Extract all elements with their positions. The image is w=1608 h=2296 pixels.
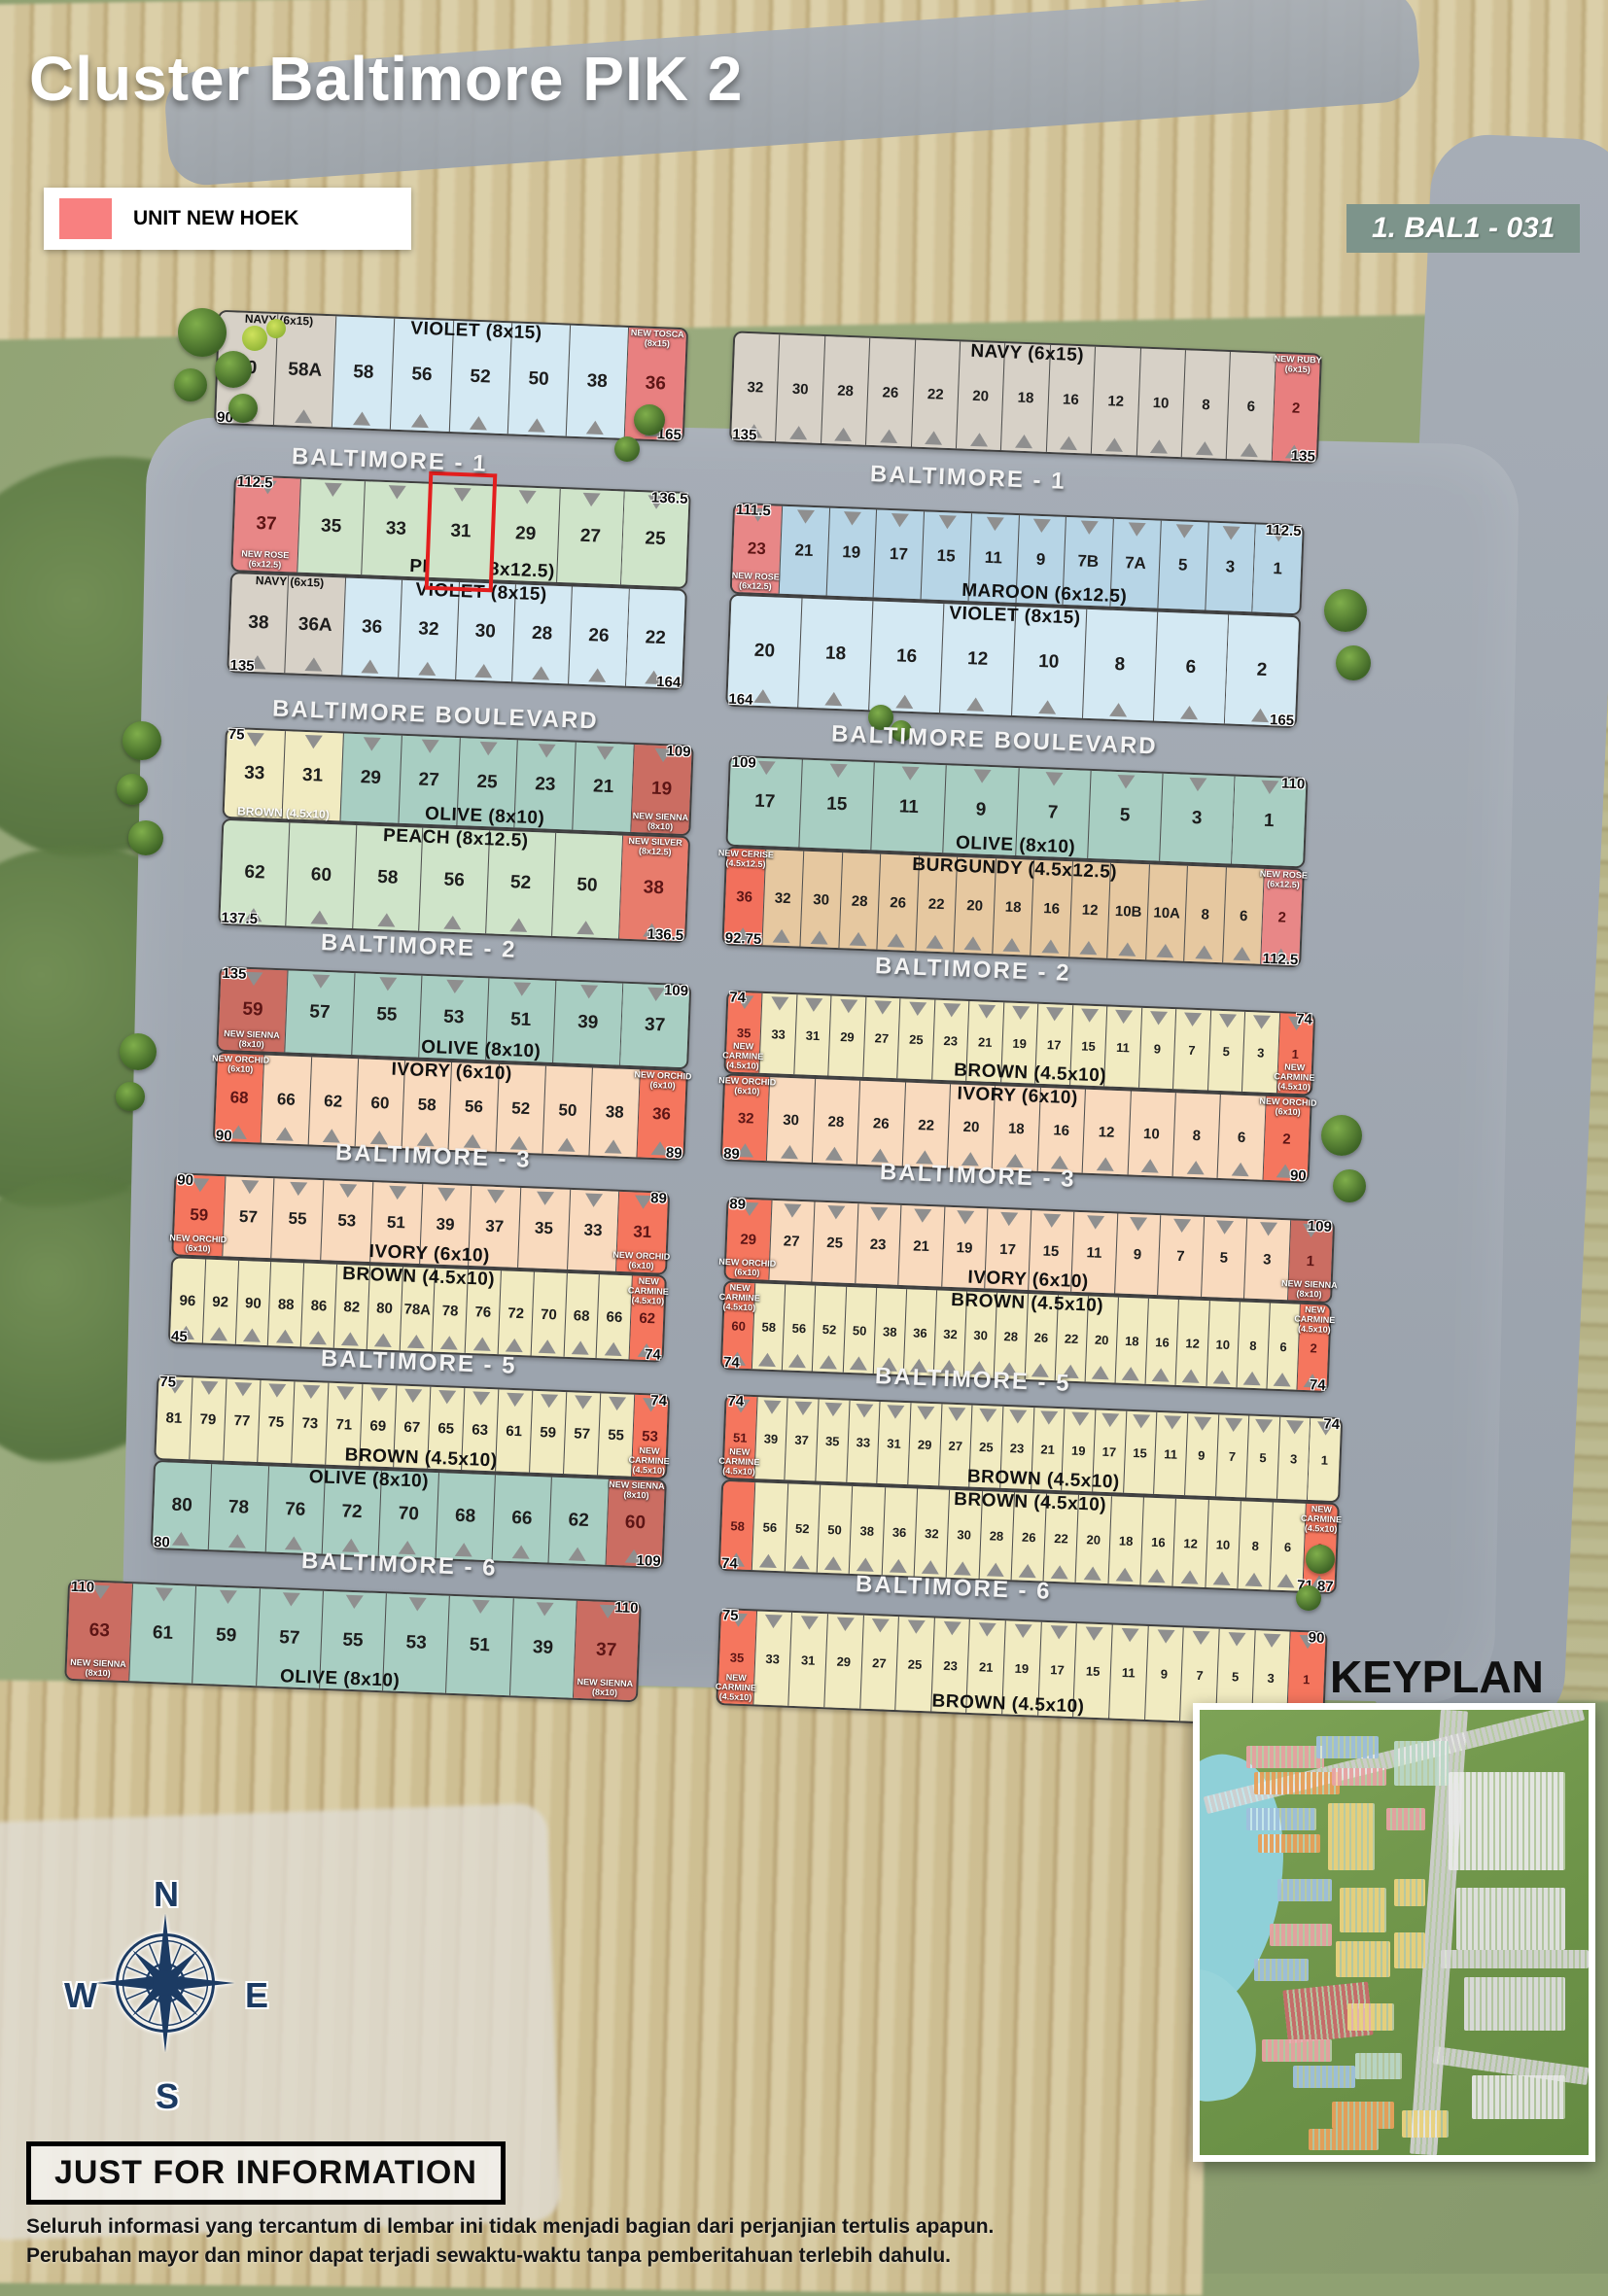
hoek-type-label: NEW ORCHID(6x10)	[628, 1070, 698, 1093]
entrance-triangle-icon	[1194, 1416, 1212, 1431]
keyplan-housing-strip	[1441, 1950, 1589, 1967]
unit-12: 12	[1172, 1499, 1208, 1587]
entrance-triangle-icon	[389, 485, 407, 500]
unit-number: 81	[165, 1409, 182, 1427]
unit-number: 6	[1279, 1339, 1287, 1354]
entrance-triangle-icon	[999, 1212, 1018, 1227]
unit-number: 52	[470, 366, 491, 389]
unit-number: 9	[975, 799, 986, 820]
unit-number: 38	[859, 1523, 874, 1539]
entrance-triangle-icon	[926, 935, 944, 950]
entrance-triangle-icon	[577, 921, 595, 935]
entrance-triangle-icon	[312, 974, 331, 989]
unit-number: 17	[890, 544, 909, 565]
keyplan-housing-strip	[1254, 1959, 1309, 1981]
entrance-triangle-icon	[411, 413, 430, 428]
tree	[1324, 589, 1367, 632]
entrance-triangle-icon	[418, 661, 437, 676]
unit-22: 22	[901, 1083, 950, 1168]
unit-number: 10A	[1153, 904, 1180, 922]
keyplan-housing-strip	[1316, 1736, 1379, 1758]
unit-number: 33	[244, 763, 265, 785]
entrance-triangle-icon	[536, 1602, 554, 1617]
unit-number: 21	[913, 1237, 929, 1255]
entrance-triangle-icon	[541, 1394, 559, 1409]
tree	[634, 404, 665, 435]
entrance-triangle-icon	[1083, 1566, 1101, 1581]
unit-8: 8	[1184, 866, 1226, 962]
entrance-triangle-icon	[1180, 706, 1199, 720]
unit-number: 2	[1310, 1340, 1317, 1355]
keyplan-housing-strip	[1270, 1924, 1332, 1946]
unit-number: 1	[1303, 1672, 1311, 1687]
keyplan-housing-strip	[1386, 1808, 1425, 1830]
unit-79: 79	[189, 1377, 226, 1460]
entrance-triangle-icon	[757, 761, 776, 776]
hoek-type-label: NEW ORCHID(6x10)	[161, 1234, 233, 1256]
unit-72: 72	[498, 1270, 534, 1355]
entrance-triangle-icon	[156, 1587, 174, 1602]
unit-number: 12	[1185, 1336, 1200, 1351]
entrance-triangle-icon	[938, 515, 957, 530]
entrance-triangle-icon	[1241, 443, 1259, 458]
unit-27: 27	[859, 1616, 898, 1710]
unit-number: 9	[1160, 1666, 1168, 1681]
unit-number: 57	[279, 1627, 300, 1650]
unit-number: 33	[771, 1026, 786, 1042]
unit-39: 39	[552, 981, 622, 1065]
entrance-triangle-icon	[1118, 942, 1136, 957]
unit-number: 32	[747, 379, 763, 397]
unit-number: 2	[1292, 400, 1301, 416]
hoek-type-label: NEW CARMINE(4.5x10)	[620, 1276, 677, 1307]
unit-number: 29	[836, 1653, 851, 1669]
entrance-triangle-icon	[324, 483, 342, 498]
entrance-triangle-icon	[901, 766, 920, 781]
unit-number: 12	[1107, 393, 1124, 410]
unit-9: 9	[1114, 1213, 1161, 1295]
unit-number: 7	[1188, 1042, 1196, 1057]
entrance-triangle-icon	[789, 426, 808, 440]
unit-number: 57	[309, 1001, 331, 1024]
unit-number: 15	[826, 794, 848, 817]
entrance-triangle-icon	[763, 1400, 782, 1414]
entrance-triangle-icon	[268, 1383, 287, 1398]
unit-number: 10	[1143, 1125, 1160, 1142]
unit-number: 33	[583, 1220, 603, 1240]
unit-number: 57	[574, 1425, 590, 1443]
entrance-triangle-icon	[302, 1385, 321, 1400]
entrance-triangle-icon	[470, 416, 488, 431]
bush	[242, 326, 267, 351]
entrance-triangle-icon	[240, 1180, 259, 1195]
unit-number: 21	[593, 776, 614, 798]
unit-type-label: IVORY (6x10)	[967, 1268, 1089, 1294]
unit-number: 16	[1053, 1122, 1069, 1139]
unit-70: 70	[530, 1272, 566, 1357]
unit-5: 5	[1157, 521, 1207, 610]
entrance-triangle-icon	[339, 1184, 358, 1199]
entrance-triangle-icon	[379, 977, 398, 991]
unit-number: 10	[1152, 395, 1169, 412]
edge-dimension: 90	[216, 1128, 232, 1145]
street-label: BALTIMORE - 2	[875, 953, 1071, 988]
entrance-triangle-icon	[1163, 1415, 1181, 1430]
unit-21: 21	[897, 1205, 944, 1287]
entrance-triangle-icon	[1038, 700, 1057, 714]
unit-number: 33	[765, 1651, 780, 1666]
unit-number: 29	[740, 1231, 756, 1248]
unit-type-label: IVORY (6x10)	[957, 1084, 1078, 1110]
entrance-triangle-icon	[908, 1002, 926, 1017]
unit-number: 16	[1155, 1335, 1170, 1350]
tree	[228, 394, 258, 423]
unit-number: 21	[978, 1034, 993, 1050]
entrance-triangle-icon	[765, 1615, 784, 1629]
unit-number: 2	[1277, 909, 1286, 925]
unit-number: 19	[1014, 1660, 1029, 1676]
unit-number: 7	[1176, 1247, 1185, 1264]
tree	[116, 1082, 145, 1111]
street-label: BALTIMORE BOULEVARD	[831, 721, 1159, 761]
unit-10: 10	[1206, 1301, 1240, 1387]
entrance-triangle-icon	[1259, 1222, 1277, 1236]
entrance-triangle-icon	[440, 1336, 459, 1350]
compass-south-label: S	[156, 2076, 179, 2117]
entrance-triangle-icon	[1033, 519, 1052, 534]
unit-number: 60	[310, 864, 332, 887]
unit-25: 25	[894, 1617, 933, 1711]
unit-number: 6	[1246, 398, 1255, 414]
hoek-type-label: NEW CARMINE(4.5x10)	[1266, 1062, 1324, 1094]
unit-55: 55	[271, 1178, 324, 1260]
entrance-triangle-icon	[1043, 1214, 1062, 1229]
unit-60: 60	[286, 822, 356, 928]
entrance-triangle-icon	[970, 433, 989, 447]
edge-dimension: 74	[721, 1555, 738, 1573]
unit-type-label: OLIVE (8x10)	[425, 804, 545, 830]
disclaimer-text: Seluruh informasi yang tercantum di lemb…	[26, 2212, 1164, 2272]
unit-number: 73	[301, 1414, 318, 1432]
edge-dimension: 74	[1323, 1416, 1340, 1434]
unit-number: 3	[1267, 1670, 1275, 1685]
unit-type-label: OLIVE (8x10)	[956, 833, 1076, 859]
edge-dimension: 75	[159, 1374, 176, 1391]
tree	[122, 721, 161, 760]
unit-type-label: OLIVE (8x10)	[308, 1467, 429, 1493]
hoek-type-label: NEW CARMINE(4.5x10)	[706, 1673, 765, 1704]
tree	[117, 774, 148, 805]
unit-77: 77	[223, 1379, 260, 1462]
unit-12: 12	[1091, 347, 1140, 456]
hoek-type-label: NEW CARMINE(4.5x10)	[1293, 1504, 1348, 1535]
entrance-triangle-icon	[1182, 1369, 1201, 1383]
unit-number: 31	[633, 1222, 652, 1242]
unit-56: 56	[782, 1284, 816, 1371]
entrance-triangle-icon	[341, 1332, 360, 1346]
unit-15: 15	[1123, 1411, 1157, 1494]
unit-number: 10B	[1115, 902, 1142, 920]
entrance-triangle-icon	[374, 1333, 393, 1347]
unit-number: 22	[645, 627, 666, 649]
unit-number: 62	[324, 1092, 343, 1112]
entrance-triangle-icon	[507, 1393, 525, 1408]
unit-8: 8	[1082, 609, 1157, 721]
keyplan-housing-strip	[1262, 2039, 1332, 2062]
unit-number: 53	[443, 1007, 465, 1029]
entrance-triangle-icon	[557, 1137, 576, 1152]
unit-number: 25	[826, 1235, 843, 1252]
unit-number: 29	[840, 1028, 855, 1044]
unit-number: 62	[639, 1309, 655, 1327]
unit-number: 25	[908, 1656, 923, 1672]
entrance-triangle-icon	[408, 1597, 427, 1612]
unit-16: 16	[1140, 1497, 1176, 1585]
unit-number: 68	[229, 1088, 249, 1108]
unit-90: 90	[234, 1261, 270, 1345]
entrance-triangle-icon	[528, 418, 546, 433]
unit-30: 30	[775, 334, 824, 443]
tree	[178, 308, 227, 357]
unit-number: 20	[1095, 1332, 1109, 1347]
entrance-triangle-icon	[245, 972, 263, 987]
unit-number: 31	[801, 1652, 816, 1668]
unit-number: 61	[506, 1422, 522, 1440]
entrance-triangle-icon	[247, 733, 265, 748]
entrance-triangle-icon	[1263, 1634, 1281, 1649]
entrance-triangle-icon	[925, 431, 943, 445]
unit-26: 26	[865, 338, 915, 447]
edge-dimension: 89	[650, 1190, 667, 1207]
entrance-triangle-icon	[1070, 1412, 1089, 1427]
unit-2: 2	[1224, 614, 1299, 726]
tree	[1321, 1115, 1362, 1156]
edge-dimension: 110	[71, 1579, 95, 1596]
entrance-triangle-icon	[569, 1547, 587, 1561]
keyplan-housing-strip	[1449, 1772, 1565, 1870]
unit-26: 26	[856, 1081, 905, 1166]
unit-number: 11	[1116, 1039, 1130, 1055]
unit-number: 36	[892, 1524, 907, 1540]
unit-number: 78	[441, 1302, 458, 1319]
hoek-type-label: NEW CARMINE(4.5x10)	[620, 1446, 678, 1478]
info-box: JUST FOR INFORMATION	[26, 2141, 506, 2205]
entrance-triangle-icon	[1245, 1573, 1264, 1587]
unit-27: 27	[556, 489, 624, 584]
unit-number: 38	[643, 877, 664, 899]
unit-number: 58	[730, 1518, 745, 1534]
unit-number: 11	[984, 548, 1002, 569]
entrance-triangle-icon	[1040, 1410, 1059, 1425]
unit-number: 11	[1164, 1446, 1177, 1462]
entrance-triangle-icon	[850, 1356, 868, 1371]
unit-type-label: IVORY (6x10)	[368, 1241, 490, 1268]
unit-number: 35	[321, 516, 342, 539]
unit-23: 23	[855, 1203, 901, 1285]
unit-number: 27	[418, 769, 439, 791]
unit-number: 27	[874, 1030, 889, 1046]
hoek-type-label: NEW ORCHID(6x10)	[205, 1054, 275, 1076]
unit-number: 17	[999, 1240, 1016, 1258]
unit-11: 11	[1108, 1625, 1147, 1720]
unit-number: 21	[794, 540, 814, 561]
unit-31: 31	[788, 1613, 827, 1707]
entrance-triangle-icon	[572, 1340, 590, 1355]
unit-number: 57	[239, 1207, 259, 1228]
unit-number: 8	[1202, 396, 1210, 412]
unit-number: 78	[227, 1497, 249, 1519]
tree	[1333, 1169, 1366, 1202]
unit-30: 30	[800, 852, 842, 948]
entrance-triangle-icon	[1101, 1413, 1120, 1428]
entrance-triangle-icon	[759, 1553, 778, 1568]
unit-61: 61	[495, 1389, 532, 1472]
entrance-triangle-icon	[295, 409, 313, 424]
unit-number: 68	[574, 1307, 590, 1325]
edge-dimension: 164	[656, 674, 682, 691]
unit-number: 72	[341, 1501, 363, 1523]
entrance-triangle-icon	[604, 1341, 622, 1356]
entrance-triangle-icon	[796, 509, 815, 524]
hoek-type-label: NEW CERISE(4.5x12.5)	[716, 849, 777, 870]
edge-dimension: 109	[636, 1552, 661, 1570]
unit-36: 36	[881, 1487, 917, 1576]
hoek-type-label: NEW ROSE(6x12.5)	[720, 572, 790, 594]
unit-62: 62	[307, 1057, 358, 1146]
unit-59: 59	[192, 1586, 260, 1686]
unit-number: 52	[822, 1321, 837, 1337]
keyplan-housing-strip	[1394, 1879, 1425, 1905]
unit-28: 28	[838, 852, 880, 949]
edge-dimension: 74	[1310, 1376, 1326, 1394]
unit-18: 18	[797, 599, 872, 711]
unit-number: 5	[1222, 1044, 1230, 1059]
unit-6: 6	[1153, 612, 1228, 724]
unit-number: 38	[605, 1102, 624, 1123]
entrance-triangle-icon	[192, 1178, 210, 1193]
unit-number: 53	[405, 1632, 427, 1654]
unit-number: 58	[761, 1319, 776, 1335]
unit-number: 63	[472, 1421, 488, 1439]
unit-number: 9	[1035, 550, 1045, 570]
unit-type-label: NAVY (6x15)	[970, 341, 1085, 366]
entrance-triangle-icon	[487, 1190, 506, 1204]
keyplan-housing-strip	[1464, 1977, 1565, 2031]
unit-number: 33	[856, 1435, 870, 1450]
entrance-triangle-icon	[605, 1139, 623, 1154]
entrance-triangle-icon	[977, 1004, 996, 1019]
unit-number: 10	[1038, 651, 1060, 674]
unit-number: 38	[248, 612, 269, 635]
entrance-triangle-icon	[474, 664, 493, 678]
entrance-triangle-icon	[228, 1534, 247, 1548]
hoek-type-label: NEW CARMINE(4.5x10)	[1288, 1305, 1342, 1336]
unit-5: 5	[1201, 1217, 1247, 1299]
unit-number: 31	[806, 1027, 821, 1043]
unit-number: 53	[642, 1428, 658, 1445]
entrance-triangle-icon	[758, 1352, 777, 1367]
unit-number: 22	[1065, 1331, 1079, 1346]
unit-number: 36	[913, 1325, 927, 1340]
block-b2-left: 59NEW SIENNA(8x10)575553513937OLIVE (8x1…	[213, 966, 692, 1162]
entrance-triangle-icon	[819, 1355, 837, 1370]
unit-51: 51	[445, 1596, 512, 1695]
entrance-triangle-icon	[583, 493, 602, 507]
unit-number: 18	[1005, 898, 1022, 916]
unit-25: 25	[897, 998, 935, 1079]
entrance-triangle-icon	[1277, 1574, 1296, 1588]
unit-number: 32	[943, 1326, 958, 1341]
entrance-triangle-icon	[888, 933, 906, 948]
unit-35: 35	[815, 1400, 849, 1482]
unit-number: 68	[455, 1506, 476, 1528]
unit-number: 15	[936, 546, 956, 567]
entrance-triangle-icon	[849, 932, 867, 947]
unit-number: 70	[398, 1504, 419, 1526]
unit-number: 59	[540, 1424, 556, 1442]
entrance-triangle-icon	[1150, 439, 1169, 454]
block-b1-right: 23NEW ROSE(6x12.5)211917151197B7A531MARO…	[725, 503, 1305, 728]
entrance-triangle-icon	[1212, 1571, 1231, 1585]
unit-number: 20	[753, 641, 775, 663]
edge-dimension: 135	[222, 965, 247, 983]
entrance-triangle-icon	[1128, 522, 1146, 537]
unit-5: 5	[1087, 771, 1163, 861]
entrance-triangle-icon	[234, 1382, 253, 1397]
entrance-triangle-icon	[771, 996, 789, 1011]
unit-number: 5	[1232, 1669, 1240, 1684]
compass-star-icon	[92, 1910, 238, 2056]
unit-number: 18	[825, 644, 847, 666]
unit-number: 58	[377, 867, 399, 889]
block-blvd-right: 17151197531OLIVE (8x10)10911036NEW CERIS…	[721, 755, 1308, 968]
unit-number: 8	[1192, 1127, 1201, 1143]
tree	[120, 1033, 157, 1070]
unit-number: 8	[1114, 654, 1125, 676]
hoek-type-label: NEW SIENNA(8x10)	[1276, 1279, 1343, 1301]
edge-dimension: 90	[1308, 1629, 1324, 1647]
unit-number: 60	[370, 1094, 390, 1114]
edge-dimension: 109	[664, 982, 689, 999]
entrance-triangle-icon	[1224, 1418, 1242, 1433]
hoek-type-label: NEW SIENNA(8x10)	[206, 1029, 297, 1052]
unit-number: 23	[943, 1657, 958, 1673]
entrance-triangle-icon	[1175, 524, 1194, 539]
entrance-triangle-icon	[513, 982, 532, 996]
unit-number: 33	[385, 518, 406, 540]
entrance-triangle-icon	[282, 1592, 300, 1607]
entrance-triangle-icon	[1228, 1632, 1246, 1647]
block-b3-right: 29NEW ORCHID(6x10)272523211917151197531N…	[720, 1197, 1335, 1393]
unit-number: 29	[918, 1437, 932, 1452]
unit-number: 19	[1071, 1443, 1086, 1458]
unit-31: 31	[426, 484, 494, 579]
unit-31: 31	[793, 994, 831, 1075]
entrance-triangle-icon	[1080, 521, 1099, 536]
entrance-triangle-icon	[1152, 1368, 1171, 1382]
unit-number: 51	[469, 1635, 490, 1657]
entrance-triangle-icon	[1195, 945, 1213, 959]
unit-55: 55	[351, 973, 421, 1058]
unit-number: 31	[450, 521, 472, 543]
unit-number: 23	[1010, 1441, 1025, 1456]
unit-88: 88	[267, 1262, 303, 1346]
entrance-triangle-icon	[836, 1618, 855, 1632]
edge-dimension: 75	[722, 1607, 739, 1624]
entrance-triangle-icon	[219, 1590, 237, 1605]
unit-number: 60	[731, 1318, 746, 1334]
unit-number: 18	[1125, 1333, 1139, 1348]
